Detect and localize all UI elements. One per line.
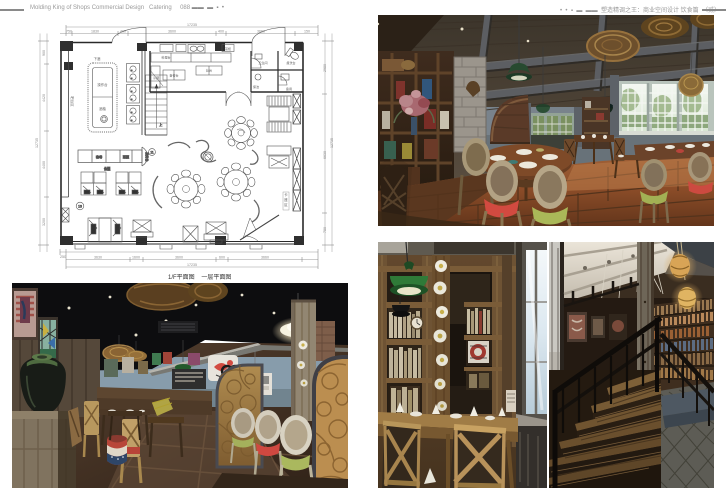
svg-text:冷藏: 冷藏: [153, 75, 159, 80]
svg-text:座: 座: [284, 197, 288, 202]
svg-text:250: 250: [60, 255, 66, 259]
svg-text:17235: 17235: [187, 23, 197, 27]
svg-text:6630: 6630: [323, 151, 327, 159]
svg-text:900: 900: [42, 50, 46, 56]
svg-text:1600: 1600: [132, 256, 140, 260]
svg-text:盫洗台: 盫洗台: [286, 60, 295, 65]
svg-text:2980: 2980: [323, 64, 327, 72]
svg-text:甄柜: 甄柜: [123, 154, 129, 159]
svg-text:吧台区: 吧台区: [70, 96, 75, 107]
svg-text:区: 区: [284, 203, 288, 207]
svg-text:备用: 备用: [286, 86, 292, 91]
svg-text:3600: 3600: [168, 30, 176, 34]
svg-text:12735: 12735: [35, 138, 39, 148]
svg-text:4420: 4420: [42, 94, 46, 102]
svg-text:4400: 4400: [42, 161, 46, 169]
svg-text:卡: 卡: [284, 192, 288, 197]
svg-text:3660: 3660: [257, 30, 265, 34]
svg-text:卫生间: 卫生间: [258, 60, 267, 65]
svg-text:酒柚: 酒柚: [99, 106, 106, 111]
svg-text:750: 750: [66, 30, 72, 34]
svg-text:休悭: 休悭: [104, 166, 111, 171]
svg-text:600: 600: [219, 256, 225, 260]
svg-text:操作台: 操作台: [97, 82, 108, 87]
svg-text:1830: 1830: [91, 30, 99, 34]
svg-text:料理台: 料理台: [161, 55, 170, 60]
svg-text:备餐台: 备餐台: [169, 73, 178, 78]
svg-text:3200: 3200: [42, 218, 46, 226]
svg-text:蒸柜: 蒸柜: [225, 46, 231, 51]
svg-text:咖啡: 咖啡: [96, 154, 102, 159]
svg-text:3630: 3630: [94, 256, 102, 260]
svg-text:12735: 12735: [330, 138, 334, 148]
svg-text:11: 11: [150, 151, 154, 155]
svg-text:780: 780: [323, 227, 327, 233]
svg-text:3660: 3660: [261, 256, 269, 260]
svg-text:17235: 17235: [187, 263, 197, 267]
svg-text:150: 150: [304, 30, 310, 34]
svg-text:灶台: 灶台: [206, 68, 212, 73]
svg-text:13: 13: [78, 205, 82, 209]
svg-text:400: 400: [218, 30, 224, 34]
svg-text:下酒: 下酒: [94, 56, 101, 61]
svg-text:保洁: 保洁: [253, 84, 259, 89]
svg-text:3600: 3600: [175, 256, 183, 260]
